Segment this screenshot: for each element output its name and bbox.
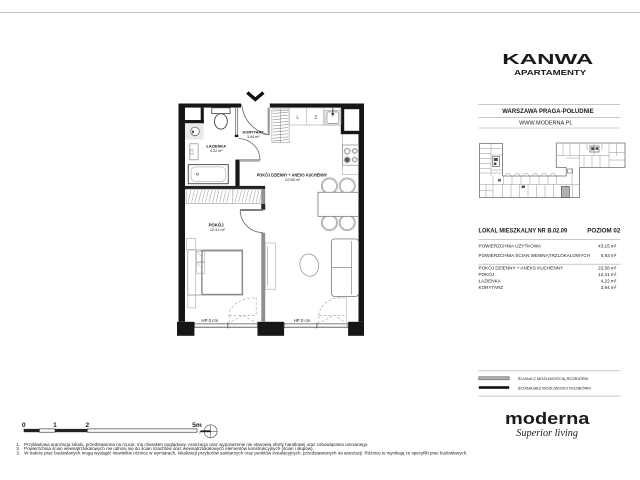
svg-text:4,22 m²: 4,22 m²: [601, 279, 617, 284]
svg-text:HP 0 cm: HP 0 cm: [294, 318, 311, 323]
svg-text:12,41 m²: 12,41 m²: [210, 228, 226, 232]
svg-text:43,15 m²: 43,15 m²: [598, 244, 617, 249]
svg-text:KORYTARZ: KORYTARZ: [243, 129, 265, 134]
svg-text:3,94 m²: 3,94 m²: [601, 285, 617, 290]
svg-text:LOKAL MIESZKALNY NR B.02.09: LOKAL MIESZKALNY NR B.02.09: [479, 227, 568, 234]
svg-text:0: 0: [22, 422, 26, 429]
svg-text:POKÓJ DZIENNY + ANEKS KUCHENNY: POKÓJ DZIENNY + ANEKS KUCHENNY: [257, 173, 328, 178]
svg-text:22,58 m²: 22,58 m²: [598, 266, 617, 271]
svg-text:ŚCIANA Z MOŻLIWOŚCIĄ ROZBIÓRKI: ŚCIANA Z MOŻLIWOŚCIĄ ROZBIÓRKI: [518, 376, 589, 381]
svg-text:POKÓJ DZIENNY + ANEKS KUCHENNY: POKÓJ DZIENNY + ANEKS KUCHENNY: [479, 265, 564, 271]
svg-text:Z: Z: [315, 115, 318, 120]
svg-text:ŁAZIENKA: ŁAZIENKA: [479, 279, 502, 284]
svg-text:3,94 m²: 3,94 m²: [247, 135, 260, 139]
svg-text:0,93 m²: 0,93 m²: [601, 253, 617, 258]
svg-text:3.: 3.: [16, 451, 20, 456]
svg-text:WARSZAWA PRAGA-POŁUDNIE: WARSZAWA PRAGA-POŁUDNIE: [502, 108, 594, 115]
svg-text:Superior living: Superior living: [516, 427, 578, 439]
svg-text:POZIOM 02: POZIOM 02: [587, 227, 621, 234]
svg-text:W trakcie prac budowlanych mog: W trakcie prac budowlanych mogą wystąpić…: [24, 451, 467, 456]
svg-text:KANWA: KANWA: [502, 52, 594, 68]
svg-text:POWIERZCHNIA ŚCIAN WEWNĄTRZLOK: POWIERZCHNIA ŚCIAN WEWNĄTRZLOKALOWYCH: [479, 251, 591, 258]
svg-text:2: 2: [85, 422, 89, 429]
svg-text:HP 0 cm: HP 0 cm: [201, 318, 218, 323]
svg-text:z: z: [199, 430, 201, 434]
svg-text:WWW.MODERNA.PL: WWW.MODERNA.PL: [519, 120, 572, 126]
svg-text:POKÓJ: POKÓJ: [209, 222, 225, 227]
svg-text:5m: 5m: [192, 422, 202, 429]
svg-text:22,58 m²: 22,58 m²: [285, 178, 301, 182]
svg-text:1: 1: [53, 422, 57, 429]
svg-text:ŚCIANA BEZ MOŻLIWOŚCI ROZBIÓRK: ŚCIANA BEZ MOŻLIWOŚCI ROZBIÓRKI: [518, 385, 592, 390]
svg-text:moderna: moderna: [505, 409, 590, 428]
svg-text:POKÓJ: POKÓJ: [479, 271, 495, 277]
svg-text:12,41 m²: 12,41 m²: [598, 272, 617, 277]
svg-text:APARTAMENTY: APARTAMENTY: [514, 70, 587, 77]
svg-text:4,22 m²: 4,22 m²: [210, 149, 223, 153]
svg-text:KORYTARZ: KORYTARZ: [479, 285, 504, 290]
svg-text:POWIERZCHNIA UŻYTKOWA: POWIERZCHNIA UŻYTKOWA: [479, 243, 543, 249]
svg-text:ŁAZIENKA: ŁAZIENKA: [206, 143, 226, 148]
